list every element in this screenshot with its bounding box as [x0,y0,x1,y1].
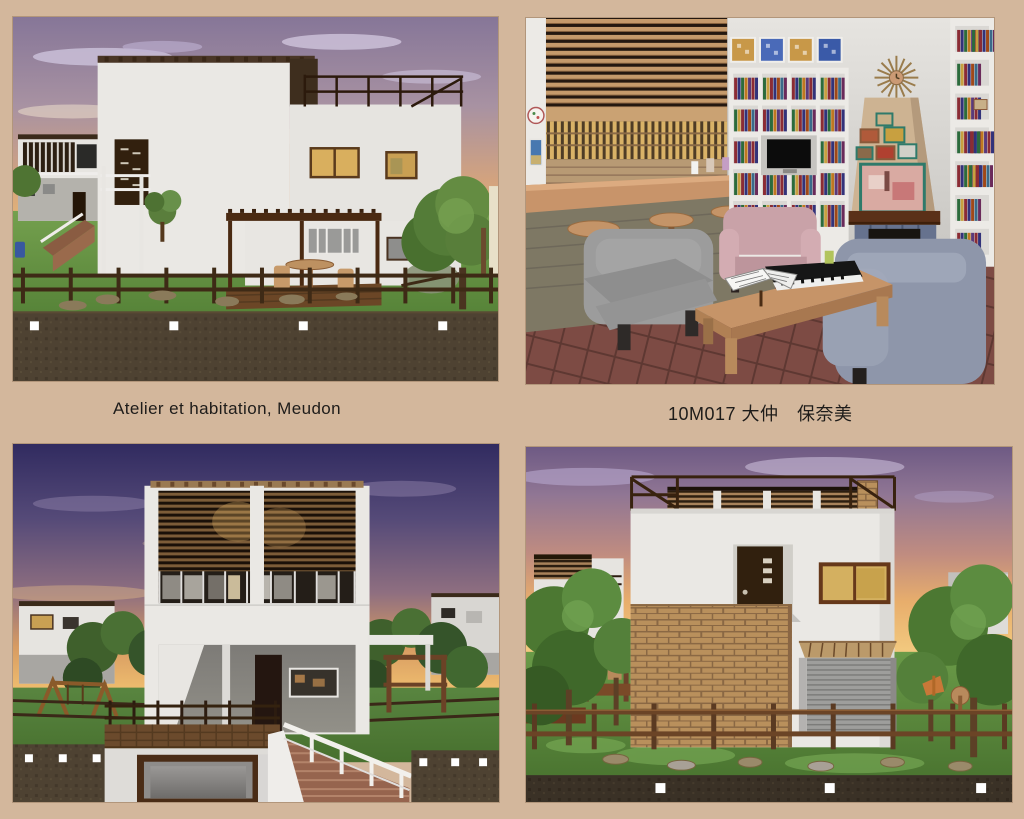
render-bottom-left [12,443,500,803]
caption-student-id-name: 10M017 大仲 保奈美 [668,400,853,426]
tv [761,135,817,175]
garage [799,642,897,735]
exterior-side-view-image [13,17,498,381]
render-top-left [12,16,499,382]
caption-project-title: Atelier et habitation, Meudon [113,399,341,419]
right-bookshelf [950,18,994,267]
front-facade-brick-image [526,447,1012,802]
main-house [631,477,897,747]
front-window [821,564,889,602]
front-facade-dusk-image [13,444,499,802]
interior-view-image [526,18,994,384]
blue-armchair [823,239,986,384]
front-wall [13,311,498,381]
render-top-right [525,17,995,385]
garage [101,748,278,802]
render-bottom-right [525,446,1013,803]
lit-window-a [311,148,359,177]
green-cup [825,251,834,264]
wing-window-band [308,228,360,254]
lit-window-b [386,152,416,178]
front-wall [526,775,1012,802]
wood-slat-wall [546,18,727,189]
presentation-board: Atelier et habitation, Meudon 10M017 大仲 … [0,0,1024,819]
